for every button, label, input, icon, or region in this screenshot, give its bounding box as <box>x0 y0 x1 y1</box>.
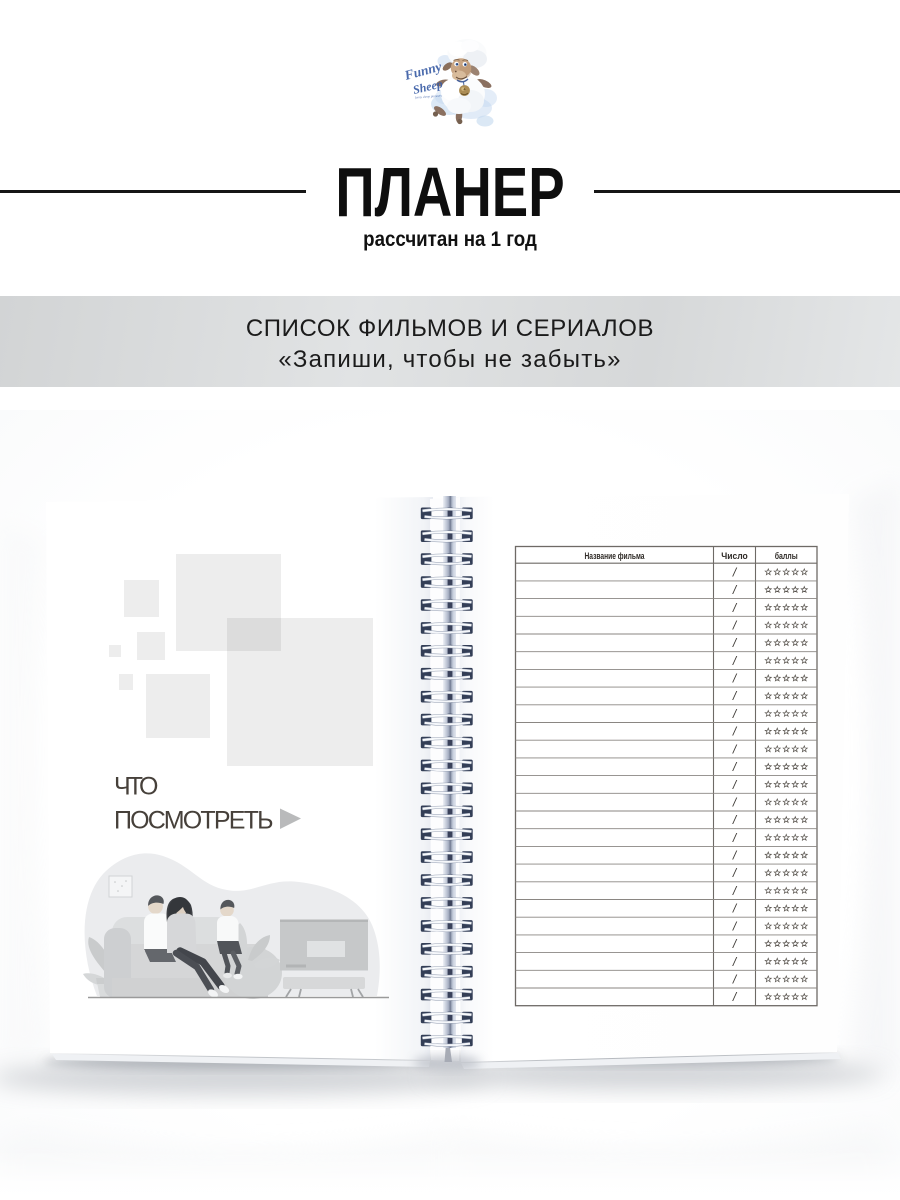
svg-text:Название фильма: Название фильма <box>585 551 646 561</box>
svg-text:Число: Число <box>721 551 748 561</box>
svg-text:баллы: баллы <box>775 551 798 561</box>
svg-text:ЧТО: ЧТО <box>114 773 159 801</box>
svg-text:ПОСМОТРЕТЬ: ПОСМОТРЕТЬ <box>114 807 274 835</box>
